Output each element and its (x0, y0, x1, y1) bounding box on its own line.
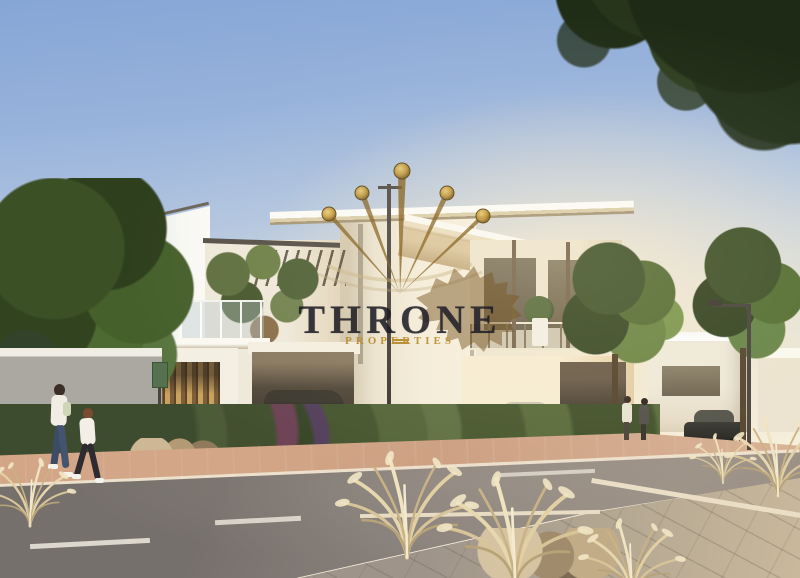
person-leg (87, 443, 101, 480)
person-shoe (95, 478, 104, 483)
pedestrian-child (74, 408, 106, 488)
person-head (624, 396, 631, 403)
street-sign (152, 362, 168, 388)
person-torso (79, 418, 96, 446)
street-lamp-head (708, 300, 722, 306)
person-head (641, 398, 648, 405)
person-torso (622, 403, 632, 423)
villa-post (512, 240, 516, 348)
tree-far-right (688, 220, 800, 372)
villa-street-photo: THRONE PROPERTIES (0, 0, 800, 578)
person-leg (624, 422, 629, 440)
ornamental-grass (0, 446, 78, 538)
standing-people-right (620, 396, 656, 444)
balcony-planter (532, 318, 548, 346)
overhanging-tree-canopy (512, 0, 800, 160)
person-torso (639, 405, 649, 425)
tree-right (556, 236, 688, 378)
street-pole-arm (378, 186, 402, 189)
ornamental-grass (576, 516, 688, 578)
person-bag (63, 402, 71, 416)
ornamental-grass (722, 404, 800, 508)
person-leg (641, 424, 646, 440)
